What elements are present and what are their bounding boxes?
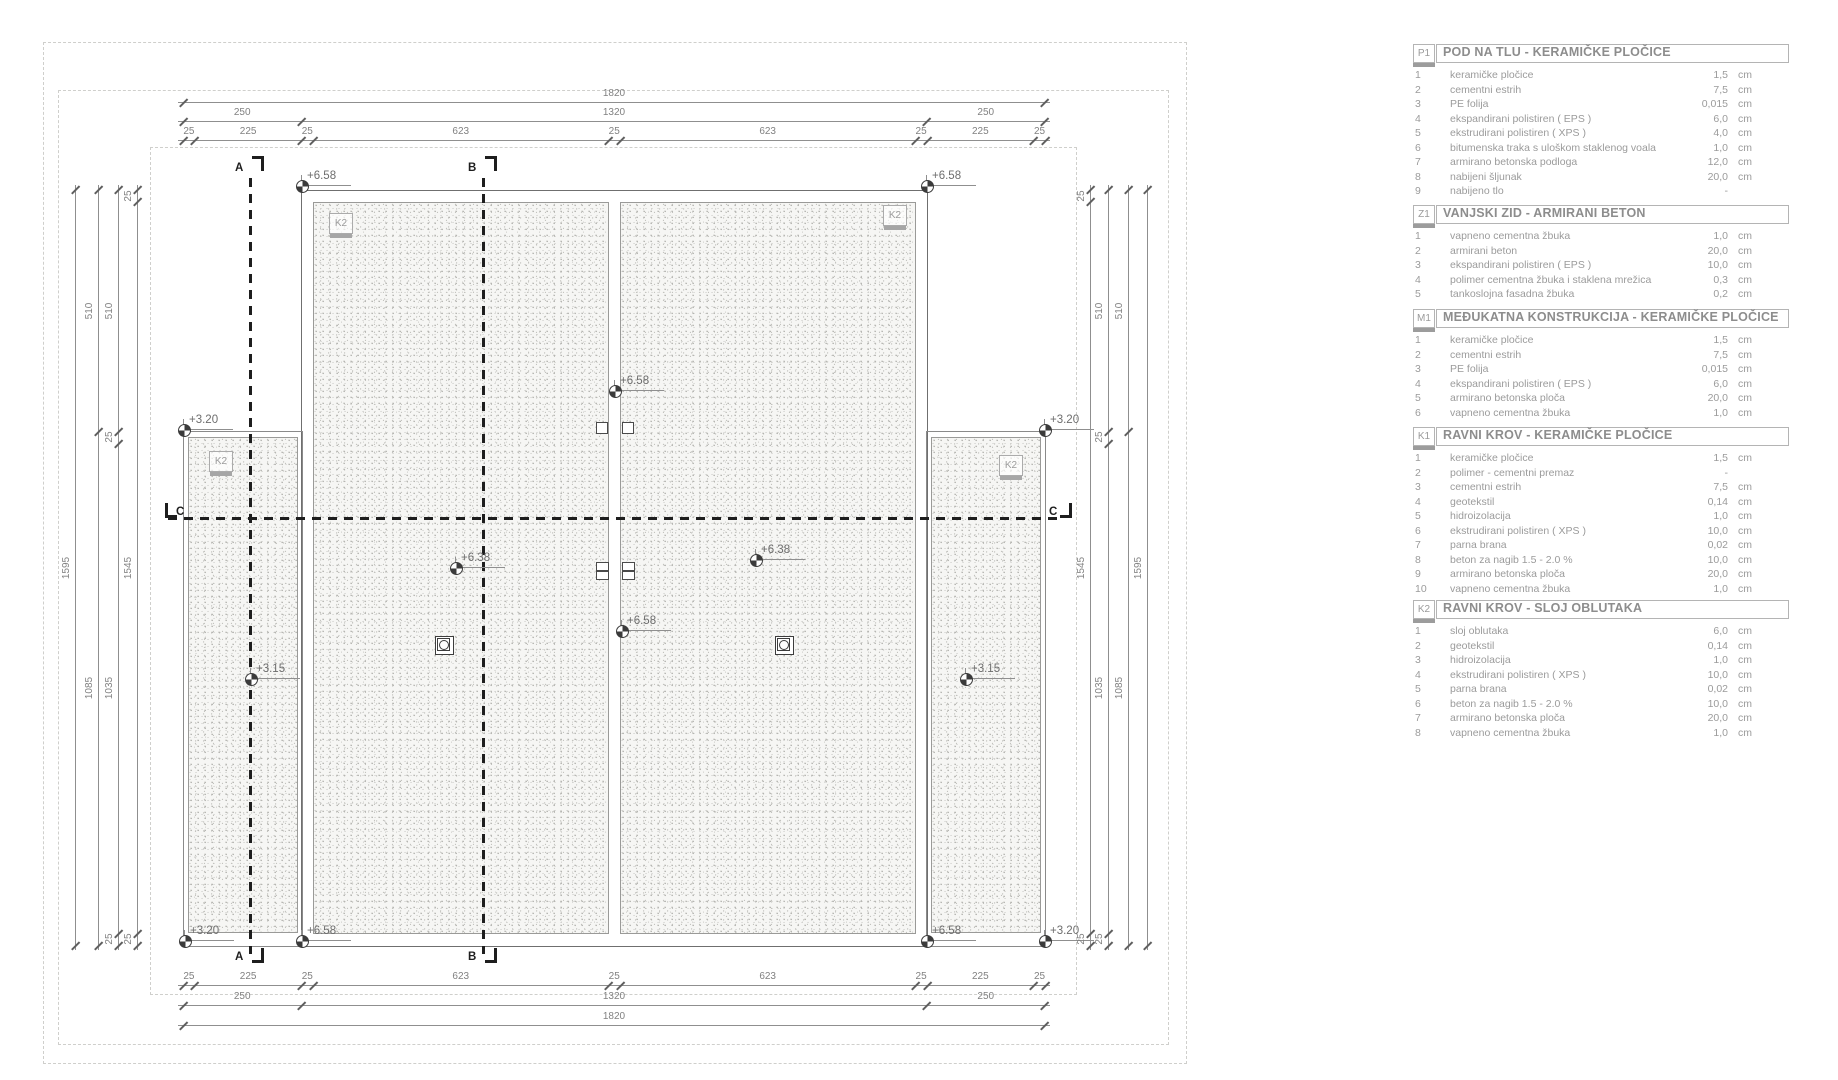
- roof-tag-bar: [884, 226, 906, 230]
- legend-row-value: 0,02: [1688, 684, 1728, 695]
- dim-line-v: [1128, 185, 1129, 950]
- legend-row-name: ekspandirani polistiren ( EPS ): [1450, 114, 1591, 125]
- legend-row-value: 7,5: [1688, 482, 1728, 493]
- legend-code-bar: [1413, 446, 1435, 450]
- legend-row-name: armirano betonska ploča: [1450, 713, 1565, 724]
- legend-row-value: 0,14: [1688, 641, 1728, 652]
- legend-row-unit: cm: [1738, 626, 1752, 637]
- legend-row-value: 1,0: [1688, 231, 1728, 242]
- legend-row-number: 1: [1415, 626, 1421, 637]
- dim-value: 25: [124, 190, 134, 201]
- dim-value: 25: [916, 972, 927, 982]
- section-line-a: [249, 178, 252, 954]
- elevation-value: +6.38: [761, 545, 790, 556]
- elevation-marker-line: [621, 630, 671, 631]
- elevation-marker-line: [926, 185, 976, 186]
- legend-code-bar: [1413, 224, 1435, 228]
- legend-code-k1: K1: [1413, 427, 1435, 446]
- roof-tag-bar: [1000, 476, 1022, 480]
- dim-value: 1085: [1115, 677, 1125, 699]
- dim-value: 1545: [124, 557, 134, 579]
- legend-row-number: 3: [1415, 260, 1421, 271]
- dim-value: 25: [1034, 972, 1045, 982]
- legend-row-number: 8: [1415, 172, 1421, 183]
- legend-row-unit: cm: [1738, 335, 1752, 346]
- legend-row-unit: cm: [1738, 393, 1752, 404]
- roof-drain-circle: [779, 640, 789, 650]
- dim-value: 623: [452, 127, 469, 137]
- legend-row-number: 2: [1415, 246, 1421, 257]
- dim-value: 1545: [1077, 557, 1087, 579]
- legend-row-number: 9: [1415, 186, 1421, 197]
- legend-row-number: 3: [1415, 482, 1421, 493]
- legend-title: POD NA TLU - KERAMIČKE PLOČICE: [1443, 44, 1671, 61]
- dim-value: 25: [124, 934, 134, 945]
- legend-row-name: tankoslojna fasadna žbuka: [1450, 289, 1574, 300]
- elevation-marker-line: [455, 567, 505, 568]
- elevation-value: +6.58: [627, 616, 656, 627]
- legend-code-bar: [1413, 328, 1435, 332]
- elevation-value: +3.15: [256, 664, 285, 675]
- section-letter-C: C: [176, 507, 184, 518]
- legend-row-number: 3: [1415, 364, 1421, 375]
- elevation-marker-line: [755, 559, 805, 560]
- legend-row-name: vapneno cementna žbuka: [1450, 231, 1570, 242]
- legend-code-bar: [1413, 619, 1435, 623]
- legend-row-name: nabijeni šljunak: [1450, 172, 1522, 183]
- dim-line-v: [75, 185, 76, 950]
- legend-row-unit: cm: [1738, 728, 1752, 739]
- dim-value: 623: [759, 127, 776, 137]
- elevation-value: +3.15: [971, 664, 1000, 675]
- dim-value: 250: [234, 992, 251, 1002]
- legend-row-value: 0,015: [1688, 364, 1728, 375]
- legend-row-value: 0,3: [1688, 275, 1728, 286]
- roof-tag-bar: [330, 234, 352, 238]
- legend-row-name: polimer - cementni premaz: [1450, 468, 1574, 479]
- elevation-value: +6.58: [932, 926, 961, 937]
- dim-value: 25: [1095, 432, 1105, 443]
- legend-row-name: beton za nagib 1.5 - 2.0 %: [1450, 555, 1573, 566]
- dim-value: 25: [183, 127, 194, 137]
- dim-value: 25: [1034, 127, 1045, 137]
- legend-row-unit: cm: [1738, 379, 1752, 390]
- legend-row-number: 2: [1415, 350, 1421, 361]
- section-letter-B: B: [468, 952, 476, 963]
- legend-row-unit: cm: [1738, 713, 1752, 724]
- dim-value: 250: [977, 992, 994, 1002]
- legend-row-number: 4: [1415, 379, 1421, 390]
- dim-value: 1595: [62, 557, 72, 579]
- legend-row-name: hidroizolacija: [1450, 655, 1511, 666]
- section-corner-mark: [1060, 503, 1072, 518]
- legend-row-number: 5: [1415, 393, 1421, 404]
- legend-title: RAVNI KROV - KERAMIČKE PLOČICE: [1443, 427, 1672, 444]
- legend-row-number: 4: [1415, 497, 1421, 508]
- dim-value: 25: [609, 127, 620, 137]
- dim-value: 25: [1077, 190, 1087, 201]
- legend-row-unit: cm: [1738, 540, 1752, 551]
- roof-vent-square: [622, 422, 634, 434]
- roof-drain: [775, 636, 794, 655]
- section-line-c: [168, 517, 1062, 520]
- dim-line-v: [137, 185, 138, 950]
- legend-row-value: 1,0: [1688, 511, 1728, 522]
- legend-row-unit: cm: [1738, 497, 1752, 508]
- legend-row-value: 7,5: [1688, 85, 1728, 96]
- legend-row-unit: cm: [1738, 260, 1752, 271]
- legend-row-value: 1,0: [1688, 655, 1728, 666]
- legend-row-value: 10,0: [1688, 260, 1728, 271]
- legend-row-number: 4: [1415, 670, 1421, 681]
- legend-row-number: 4: [1415, 114, 1421, 125]
- roof-vent-divider: [623, 570, 634, 572]
- dim-value: 1820: [603, 1012, 625, 1022]
- dim-line-v: [98, 185, 99, 950]
- legend-row-number: 6: [1415, 408, 1421, 419]
- legend-row-number: 7: [1415, 157, 1421, 168]
- legend-row-unit: cm: [1738, 511, 1752, 522]
- legend-row-unit: cm: [1738, 70, 1752, 81]
- legend-row-name: armirani beton: [1450, 246, 1517, 257]
- legend-code-bar: [1413, 63, 1435, 67]
- legend-row-unit: cm: [1738, 453, 1752, 464]
- legend-row-value: 0,14: [1688, 497, 1728, 508]
- legend-row-unit: cm: [1738, 114, 1752, 125]
- legend-code-k2: K2: [1413, 600, 1435, 619]
- legend-row-name: ekstrudirani polistiren ( XPS ): [1450, 128, 1586, 139]
- elevation-value: +3.20: [190, 926, 219, 937]
- legend-row-value: 20,0: [1688, 246, 1728, 257]
- dim-value: 510: [1115, 302, 1125, 319]
- legend-row-number: 1: [1415, 453, 1421, 464]
- legend-row-value: 1,0: [1688, 728, 1728, 739]
- roof-drain: [435, 636, 454, 655]
- legend-row-number: 2: [1415, 641, 1421, 652]
- legend-row-name: beton za nagib 1.5 - 2.0 %: [1450, 699, 1573, 710]
- section-letter-A: A: [235, 163, 243, 174]
- roof-vent-divider: [597, 570, 608, 572]
- roof-tag-bar: [210, 472, 232, 476]
- legend-row-name: keramičke pločice: [1450, 335, 1533, 346]
- dim-value: 1820: [603, 89, 625, 99]
- legend-row-name: geotekstil: [1450, 641, 1494, 652]
- legend-code-z1: Z1: [1413, 205, 1435, 224]
- legend-row-number: 4: [1415, 275, 1421, 286]
- legend-row-name: cementni estrih: [1450, 350, 1521, 361]
- roof-panel-left-wing: [188, 437, 298, 933]
- legend-row-value: 12,0: [1688, 157, 1728, 168]
- dim-line-h: [178, 1005, 1050, 1006]
- legend-row-unit: cm: [1738, 85, 1752, 96]
- dim-value: 25: [302, 127, 313, 137]
- legend-row-unit: cm: [1738, 482, 1752, 493]
- legend-row-name: vapneno cementna žbuka: [1450, 728, 1570, 739]
- legend-row-name: PE folija: [1450, 364, 1489, 375]
- dim-value: 25: [105, 934, 115, 945]
- legend-row-unit: cm: [1738, 128, 1752, 139]
- legend-row-value: 20,0: [1688, 569, 1728, 580]
- legend-row-number: 6: [1415, 143, 1421, 154]
- section-letter-A: A: [235, 952, 243, 963]
- dim-value: 225: [972, 127, 989, 137]
- roof-panel-main-right: [620, 202, 916, 934]
- elevation-value: +3.20: [189, 415, 218, 426]
- dim-value: 225: [240, 127, 257, 137]
- elevation-value: +3.20: [1050, 926, 1079, 937]
- legend-row-value: 6,0: [1688, 379, 1728, 390]
- legend-row-name: armirano betonska ploča: [1450, 569, 1565, 580]
- legend-row-name: nabijeno tlo: [1450, 186, 1504, 197]
- legend-title: VANJSKI ZID - ARMIRANI BETON: [1443, 205, 1646, 222]
- legend-row-unit: cm: [1738, 364, 1752, 375]
- legend-row-number: 1: [1415, 231, 1421, 242]
- legend-row-number: 8: [1415, 555, 1421, 566]
- dim-value: 25: [302, 972, 313, 982]
- legend-row-unit: cm: [1738, 350, 1752, 361]
- legend-row-value: 1,0: [1688, 408, 1728, 419]
- legend-title: RAVNI KROV - SLOJ OBLUTAKA: [1443, 600, 1642, 617]
- dim-line-h: [178, 1025, 1050, 1026]
- legend-row-name: geotekstil: [1450, 497, 1494, 508]
- legend-row-name: ekspandirani polistiren ( EPS ): [1450, 260, 1591, 271]
- roof-tag-main-left: K2: [329, 213, 353, 234]
- legend-row-value: 10,0: [1688, 670, 1728, 681]
- dim-line-v: [1147, 185, 1148, 950]
- legend-row-name: sloj oblutaka: [1450, 626, 1508, 637]
- legend-row-number: 5: [1415, 684, 1421, 695]
- elevation-marker-line: [183, 429, 233, 430]
- legend-row-name: vapneno cementna žbuka: [1450, 584, 1570, 595]
- legend-row-name: parna brana: [1450, 684, 1507, 695]
- dim-value: 25: [183, 972, 194, 982]
- legend-title: MEĐUKATNA KONSTRUKCIJA - KERAMIČKE PLOČI…: [1443, 309, 1779, 326]
- legend-row-name: cementni estrih: [1450, 85, 1521, 96]
- legend-row-name: PE folija: [1450, 99, 1489, 110]
- legend-row-name: vapneno cementna žbuka: [1450, 408, 1570, 419]
- dim-value: 510: [85, 302, 95, 319]
- elevation-value: +6.58: [620, 376, 649, 387]
- legend-row-number: 6: [1415, 526, 1421, 537]
- legend-row-number: 5: [1415, 128, 1421, 139]
- elevation-marker-line: [301, 940, 351, 941]
- legend-row-value: 6,0: [1688, 626, 1728, 637]
- dim-value: 25: [609, 972, 620, 982]
- roof-vent-square: [596, 562, 609, 580]
- legend-row-name: parna brana: [1450, 540, 1507, 551]
- roof-tag-main-right: K2: [883, 205, 907, 226]
- dim-value: 1320: [603, 992, 625, 1002]
- section-corner-mark: [252, 156, 264, 171]
- dim-value: 250: [234, 108, 251, 118]
- legend-row-name: armirano betonska podloga: [1450, 157, 1577, 168]
- dim-value: 25: [916, 127, 927, 137]
- dim-line-v: [1108, 185, 1109, 950]
- roof-plan-sheet: AABBCC+6.58+6.58+3.20+3.20+6.58+6.38+6.3…: [0, 0, 1838, 1080]
- legend-row-name: hidroizolacija: [1450, 511, 1511, 522]
- dim-line-h: [178, 140, 1050, 141]
- legend-row-unit: cm: [1738, 99, 1752, 110]
- elevation-value: +6.38: [461, 553, 490, 564]
- legend-row-unit: cm: [1738, 655, 1752, 666]
- section-letter-B: B: [468, 163, 476, 174]
- elevation-value: +6.58: [307, 171, 336, 182]
- dim-value: 1595: [1134, 557, 1144, 579]
- elevation-marker-line: [926, 940, 976, 941]
- legend-row-number: 9: [1415, 569, 1421, 580]
- legend-row-number: 3: [1415, 99, 1421, 110]
- legend-row-name: armirano betonska ploča: [1450, 393, 1565, 404]
- legend-row-unit: cm: [1738, 526, 1752, 537]
- legend-row-unit: cm: [1738, 157, 1752, 168]
- legend-row-unit: cm: [1738, 584, 1752, 595]
- legend-row-value: 10,0: [1688, 526, 1728, 537]
- elevation-value: +6.58: [307, 926, 336, 937]
- legend-row-value: 0,2: [1688, 289, 1728, 300]
- dim-value: 25: [1077, 934, 1087, 945]
- dim-line-h: [178, 121, 1050, 122]
- legend-row-name: ekstrudirani polistiren ( XPS ): [1450, 670, 1586, 681]
- dim-value: 225: [972, 972, 989, 982]
- legend-row-number: 2: [1415, 85, 1421, 96]
- dim-value: 1320: [603, 108, 625, 118]
- roof-plan-drawing: AABBCC+6.58+6.58+3.20+3.20+6.58+6.38+6.3…: [0, 0, 1210, 1080]
- roof-drain-circle: [439, 640, 449, 650]
- dim-value: 1085: [85, 677, 95, 699]
- legend-row-number: 5: [1415, 511, 1421, 522]
- legend-row-unit: cm: [1738, 289, 1752, 300]
- dim-value: 510: [1095, 302, 1105, 319]
- legend-row-unit: cm: [1738, 275, 1752, 286]
- legend-row-unit: cm: [1738, 569, 1752, 580]
- dim-value: 1035: [105, 677, 115, 699]
- dim-value: 25: [1095, 934, 1105, 945]
- legend-code-p1: P1: [1413, 44, 1435, 63]
- legend-row-unit: cm: [1738, 172, 1752, 183]
- legend-code-m1: M1: [1413, 309, 1435, 328]
- dim-value: 25: [105, 432, 115, 443]
- legend-row-number: 6: [1415, 699, 1421, 710]
- legend-row-number: 1: [1415, 70, 1421, 81]
- legend-row-unit: cm: [1738, 684, 1752, 695]
- legend-row-unit: cm: [1738, 246, 1752, 257]
- legend-row-number: 1: [1415, 335, 1421, 346]
- legend-row-unit: cm: [1738, 641, 1752, 652]
- section-corner-mark: [165, 503, 177, 518]
- legend-row-unit: cm: [1738, 670, 1752, 681]
- legend-row-value: 7,5: [1688, 350, 1728, 361]
- legend-row-unit: cm: [1738, 408, 1752, 419]
- dim-value: 1035: [1095, 677, 1105, 699]
- legend-row-value: 10,0: [1688, 555, 1728, 566]
- legend-row-value: 20,0: [1688, 393, 1728, 404]
- elevation-marker-line: [1044, 429, 1094, 430]
- legend-row-unit: cm: [1738, 143, 1752, 154]
- legend-row-name: keramičke pločice: [1450, 453, 1533, 464]
- legend-row-number: 3: [1415, 655, 1421, 666]
- dim-value: 623: [759, 972, 776, 982]
- elevation-value: +3.20: [1050, 415, 1079, 426]
- legend-row-value: 4,0: [1688, 128, 1728, 139]
- material-legend-panel: P1POD NA TLU - KERAMIČKE PLOČICE1keramič…: [1400, 0, 1838, 1080]
- legend-row-name: cementni estrih: [1450, 482, 1521, 493]
- dim-value: 623: [452, 972, 469, 982]
- legend-row-value: -: [1688, 186, 1728, 197]
- legend-row-value: 0,02: [1688, 540, 1728, 551]
- section-corner-mark: [485, 948, 497, 963]
- legend-row-value: 20,0: [1688, 172, 1728, 183]
- legend-row-name: ekspandirani polistiren ( EPS ): [1450, 379, 1591, 390]
- legend-row-value: 1,5: [1688, 70, 1728, 81]
- legend-row-value: -: [1688, 468, 1728, 479]
- elevation-value: +6.58: [932, 171, 961, 182]
- legend-row-name: polimer cementna žbuka i staklena mrežic…: [1450, 275, 1651, 286]
- dim-value: 250: [977, 108, 994, 118]
- legend-row-name: bitumenska traka s uloškom staklenog voa…: [1450, 143, 1656, 154]
- legend-row-value: 1,5: [1688, 335, 1728, 346]
- legend-row-number: 7: [1415, 713, 1421, 724]
- legend-row-value: 6,0: [1688, 114, 1728, 125]
- dim-value: 510: [105, 302, 115, 319]
- dim-value: 225: [240, 972, 257, 982]
- roof-tag-right-wing: K2: [999, 455, 1023, 476]
- elevation-marker-line: [965, 678, 1015, 679]
- legend-row-value: 1,0: [1688, 143, 1728, 154]
- elevation-marker-line: [301, 185, 351, 186]
- legend-row-name: ekstrudirani polistiren ( XPS ): [1450, 526, 1586, 537]
- roof-vent-square: [622, 562, 635, 580]
- legend-row-value: 10,0: [1688, 699, 1728, 710]
- section-corner-mark: [485, 156, 497, 171]
- section-corner-mark: [252, 948, 264, 963]
- elevation-marker-line: [614, 390, 664, 391]
- legend-row-unit: cm: [1738, 231, 1752, 242]
- dim-line-h: [178, 985, 1050, 986]
- legend-row-value: 1,5: [1688, 453, 1728, 464]
- roof-tag-left-wing: K2: [209, 451, 233, 472]
- legend-row-number: 2: [1415, 468, 1421, 479]
- roof-panel-right-wing: [931, 437, 1041, 933]
- legend-row-unit: cm: [1738, 699, 1752, 710]
- legend-row-unit: cm: [1738, 555, 1752, 566]
- dim-line-h: [178, 102, 1050, 103]
- legend-row-number: 5: [1415, 289, 1421, 300]
- legend-row-name: keramičke pločice: [1450, 70, 1533, 81]
- legend-row-value: 0,015: [1688, 99, 1728, 110]
- roof-vent-square: [596, 422, 608, 434]
- legend-row-number: 7: [1415, 540, 1421, 551]
- dim-line-v: [1090, 185, 1091, 950]
- legend-row-value: 1,0: [1688, 584, 1728, 595]
- elevation-marker-line: [184, 940, 234, 941]
- legend-row-number: 10: [1415, 584, 1427, 595]
- dim-line-v: [118, 185, 119, 950]
- elevation-marker-line: [250, 678, 300, 679]
- section-letter-C: C: [1049, 507, 1057, 518]
- legend-row-value: 20,0: [1688, 713, 1728, 724]
- legend-row-number: 8: [1415, 728, 1421, 739]
